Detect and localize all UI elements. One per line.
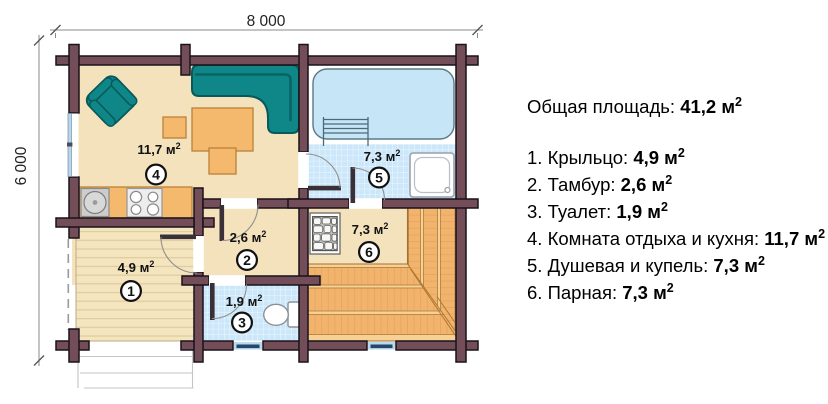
svg-text:3. Туалет: 1,9 м2: 3. Туалет: 1,9 м2 [527,200,668,222]
svg-text:4. Комната отдыха и кухня: 11,: 4. Комната отдыха и кухня: 11,7 м2 [527,227,825,249]
svg-text:Общая площадь: 41,2 м2: Общая площадь: 41,2 м2 [527,95,742,117]
svg-text:1,9 м2: 1,9 м2 [226,293,263,309]
svg-text:4: 4 [152,167,160,183]
svg-text:5: 5 [375,170,383,186]
svg-text:1: 1 [127,283,135,299]
svg-text:7,3 м2: 7,3 м2 [364,148,401,164]
svg-text:2: 2 [243,252,251,268]
svg-text:11,7 м2: 11,7 м2 [137,141,180,157]
svg-text:6: 6 [365,244,373,260]
svg-text:4,9 м2: 4,9 м2 [118,259,155,275]
svg-text:6 000: 6 000 [13,146,30,185]
svg-text:8 000: 8 000 [247,13,286,30]
svg-text:5. Душевая и купель: 7,3 м2: 5. Душевая и купель: 7,3 м2 [527,254,765,276]
svg-text:2. Тамбур: 2,6 м2: 2. Тамбур: 2,6 м2 [527,173,672,195]
svg-text:1. Крыльцо: 4,9 м2: 1. Крыльцо: 4,9 м2 [527,146,685,168]
svg-text:3: 3 [238,315,246,331]
svg-text:6. Парная: 7,3 м2: 6. Парная: 7,3 м2 [527,281,674,303]
svg-text:7,3 м2: 7,3 м2 [352,221,389,237]
svg-text:2,6 м2: 2,6 м2 [230,229,267,245]
